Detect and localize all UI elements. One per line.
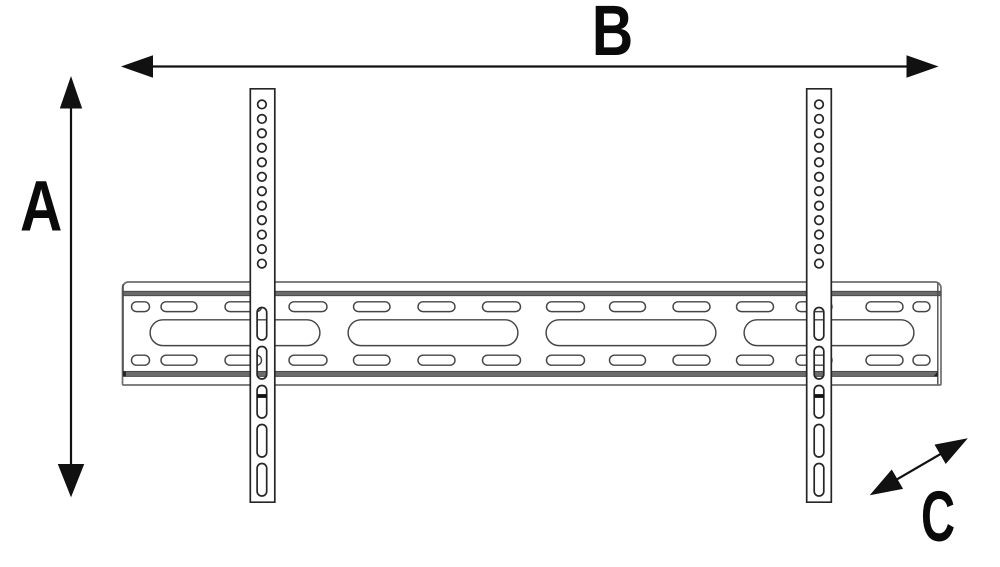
svg-text:A: A (20, 166, 62, 246)
svg-text:C: C (921, 476, 955, 556)
svg-text:B: B (592, 0, 633, 70)
